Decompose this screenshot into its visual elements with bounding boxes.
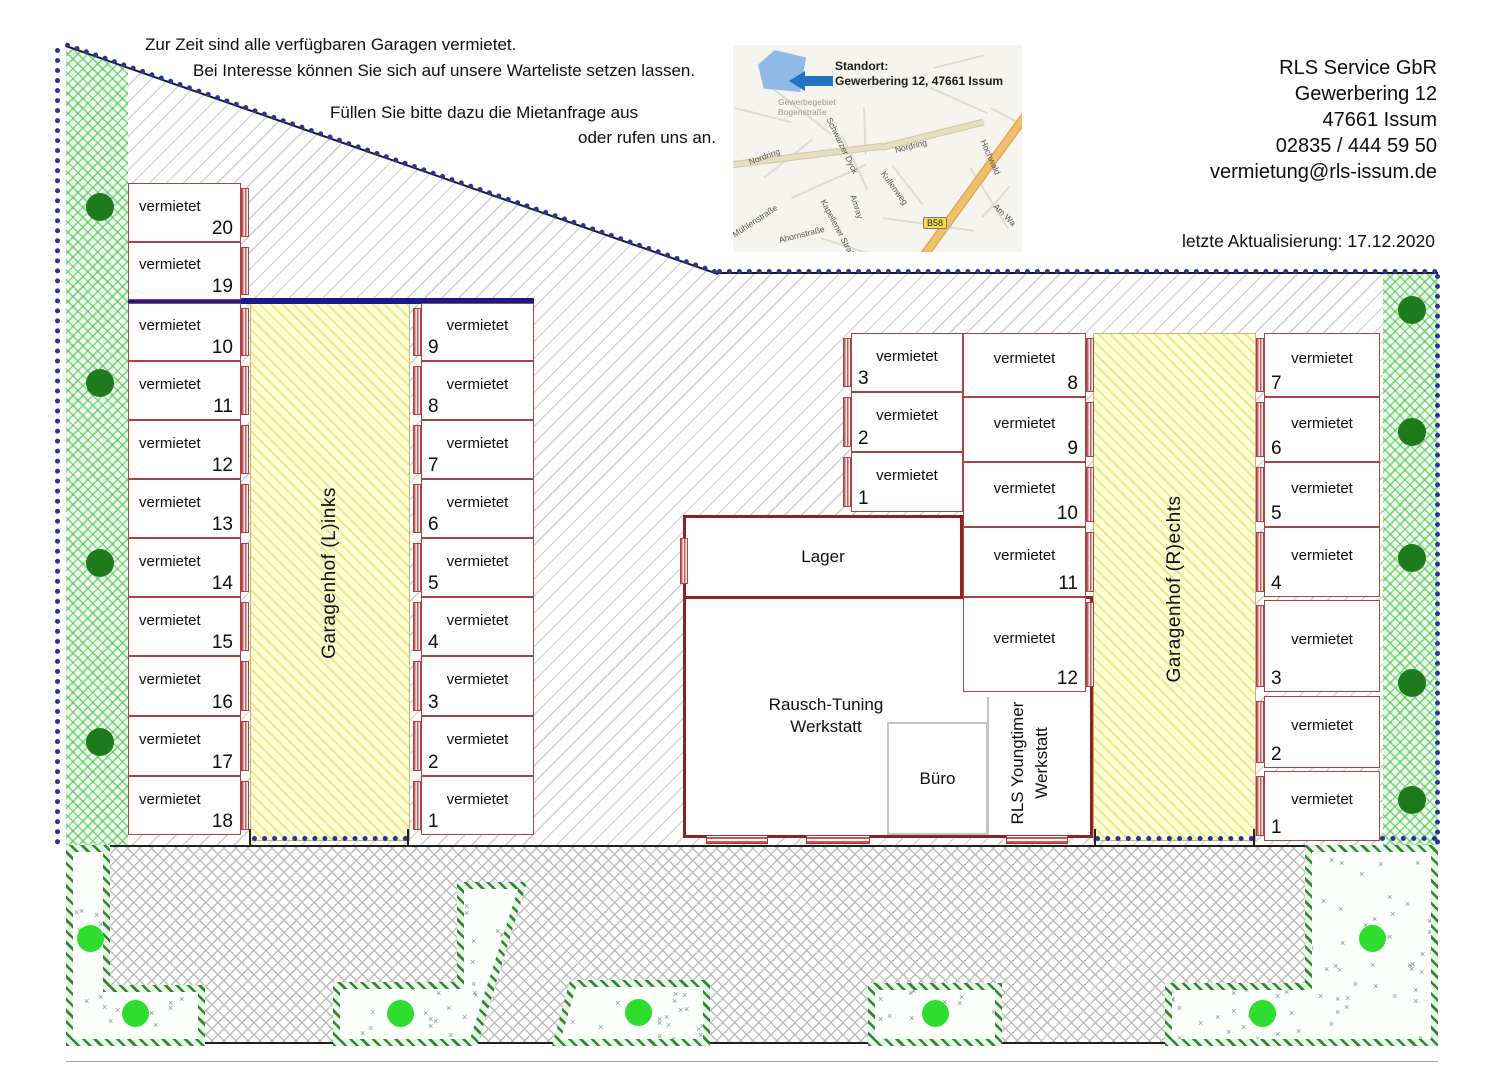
building-door-2 [806, 835, 870, 844]
garage-box-left_inner-5: vermietet5 [421, 538, 534, 597]
garage-number: 5 [428, 573, 439, 595]
garage-number: 20 [212, 218, 233, 240]
street-label: Mühlenstraße [733, 203, 779, 240]
garage-door [843, 397, 851, 447]
garage-door [1256, 532, 1264, 592]
garage-status-label: vermietet [1291, 547, 1353, 564]
garage-status-label: vermietet [139, 198, 201, 215]
garage-number: 18 [212, 811, 233, 833]
garage-box-left_inner-8: vermietet8 [421, 361, 534, 420]
garage-box-left_outer-16: vermietet16 [128, 656, 241, 716]
courtyard-right-label: Garagenhof (R)echts [1164, 455, 1186, 723]
garage-box-left_outer-13: vermietet13 [128, 479, 241, 538]
garage-door [413, 543, 421, 592]
gate-post [1253, 829, 1255, 845]
garage-box-left_outer-11: vermietet11 [128, 361, 241, 420]
garage-status-label: vermietet [139, 256, 201, 273]
garage-number: 1 [428, 811, 439, 833]
partition-line [987, 697, 989, 835]
bush-icon [1359, 925, 1386, 952]
bush-icon [1249, 1000, 1276, 1027]
garage-box-left_inner-6: vermietet6 [421, 479, 534, 538]
garage-door [241, 661, 249, 711]
garage-box-middle_right-11: vermietet11 [963, 527, 1086, 597]
garage-door [241, 781, 249, 830]
garage-door [241, 308, 249, 356]
courtyard-left-label: Garagenhof (L)inks [319, 439, 341, 707]
garage-box-right_inner-5: vermietet5 [1264, 462, 1380, 527]
garage-door [1086, 532, 1094, 592]
garage-door [241, 188, 249, 237]
garage-number: 7 [428, 455, 439, 477]
garage-number: 9 [428, 337, 439, 359]
garage-number: 10 [1057, 503, 1078, 525]
garage-box-left_inner-9: vermietet9 [421, 303, 534, 361]
garage-door [413, 366, 421, 415]
garage-status-label: vermietet [1291, 415, 1353, 432]
garage-number: 13 [212, 514, 233, 536]
garage-box-left_inner-4: vermietet4 [421, 597, 534, 656]
garage-number: 3 [858, 368, 869, 390]
bush-icon [625, 999, 652, 1026]
garage-door [413, 484, 421, 533]
garage-number: 17 [212, 752, 233, 774]
garage-door [1086, 467, 1094, 522]
garage-door [413, 661, 421, 711]
garage-door [241, 247, 249, 295]
bush-icon [922, 1000, 949, 1027]
garage-box-left_outer-15: vermietet15 [128, 597, 241, 656]
garage-door [1086, 338, 1094, 392]
tree-icon [1398, 669, 1426, 697]
tree-icon [1398, 544, 1426, 572]
tree-icon [86, 549, 114, 577]
garage-box-middle_right-8: vermietet8 [963, 333, 1086, 397]
garage-door [1256, 338, 1264, 392]
boundary-right-dots [1435, 274, 1440, 845]
map-road [930, 87, 987, 114]
location-map: Standort: Gewerbering 12, 47661 Issum Ge… [733, 45, 1022, 252]
tree-icon [1398, 786, 1426, 814]
garage-door [1256, 605, 1264, 687]
garage-box-left_outer-17: vermietet17 [128, 716, 241, 776]
company-city: 47661 Issum [1210, 107, 1437, 133]
garage-status-label: vermietet [1291, 717, 1353, 734]
garage-box-right_inner-4: vermietet4 [1264, 527, 1380, 597]
notice-line-4: oder rufen uns an. [578, 128, 716, 148]
garage-box-middle_left-3: vermietet3 [851, 333, 963, 392]
boundary-top-dots [717, 269, 1438, 274]
garage-status-label: vermietet [1291, 350, 1353, 367]
notice-line-3: Füllen Sie bitte dazu die Mietanfrage au… [330, 103, 638, 123]
buero-label: Büro [889, 768, 986, 790]
company-name: RLS Service GbR [1210, 55, 1437, 81]
garage-box-left_outer-20: vermietet20 [128, 183, 241, 242]
garage-door [413, 308, 421, 356]
garage-status-label: vermietet [447, 791, 509, 808]
garage-status-label: vermietet [994, 630, 1056, 647]
garage-number: 2 [858, 428, 869, 450]
garage-number: 2 [428, 752, 439, 774]
gate-right-strip [1380, 836, 1437, 841]
garage-box-middle_left-2: vermietet2 [851, 392, 963, 452]
garage-box-right_inner-7: vermietet7 [1264, 333, 1380, 397]
garage-status-label: vermietet [994, 547, 1056, 564]
garage-box-middle_left-1: vermietet1 [851, 452, 963, 512]
garage-status-label: vermietet [1291, 631, 1353, 648]
garage-box-left_outer-10: vermietet10 [128, 303, 241, 361]
garage-status-label: vermietet [139, 553, 201, 570]
garage-box-middle_right-9: vermietet9 [963, 397, 1086, 462]
garage-status-label: vermietet [139, 494, 201, 511]
garage-status-label: vermietet [994, 480, 1056, 497]
garage-status-label: vermietet [447, 317, 509, 334]
garage-status-label: vermietet [876, 348, 938, 365]
garage-box-left_inner-2: vermietet2 [421, 716, 534, 776]
notice-line-2: Bei Interesse können Sie sich auf unsere… [193, 61, 695, 81]
company-phone: 02835 / 444 59 50 [1210, 133, 1437, 159]
gate-left-courtyard [252, 836, 408, 841]
street-label: Ahornstraße [778, 224, 826, 245]
garage-door [413, 425, 421, 474]
building-door-3 [1006, 835, 1068, 844]
garage-door [241, 484, 249, 533]
street-label: Bogenstraße [778, 107, 827, 117]
tree-icon [1398, 296, 1426, 324]
lager-door [680, 538, 688, 584]
garage-door [413, 721, 421, 771]
garage-status-label: vermietet [139, 376, 201, 393]
garage-number: 10 [212, 337, 233, 359]
garage-box-middle_right-10: vermietet10 [963, 462, 1086, 527]
garage-number: 12 [1057, 668, 1078, 690]
garage-number: 11 [213, 396, 233, 418]
garage-status-label: vermietet [447, 731, 509, 748]
garage-box-right_inner-2: vermietet2 [1264, 696, 1380, 768]
garage-number: 1 [858, 488, 869, 510]
garage-door [843, 457, 851, 507]
tree-icon [86, 728, 114, 756]
garage-box-left_inner-3: vermietet3 [421, 656, 534, 716]
garage-box-right_inner-1: vermietet1 [1264, 771, 1380, 841]
garage-number: 3 [1271, 668, 1282, 690]
lager-building: Lager [683, 515, 963, 599]
garage-number: 15 [212, 632, 233, 654]
garage-box-left_inner-1: vermietet1 [421, 776, 534, 835]
map-road [820, 237, 901, 252]
street-label: Amray [848, 193, 865, 219]
garage-status-label: vermietet [994, 350, 1056, 367]
garage-number: 7 [1271, 373, 1282, 395]
garage-door [241, 425, 249, 474]
garage-box-left_outer-19: vermietet19 [128, 242, 241, 300]
garage-status-label: vermietet [139, 791, 201, 808]
bush-icon [77, 925, 104, 952]
boundary-left-dots [55, 48, 60, 845]
map-b58-badge: B58 [923, 217, 947, 229]
map-standort: Standort: Gewerbering 12, 47661 Issum [835, 59, 1003, 89]
buero-room: Büro [887, 722, 988, 835]
gate-post [1094, 829, 1096, 845]
garage-status-label: vermietet [139, 731, 201, 748]
garage-status-label: vermietet [447, 671, 509, 688]
garage-number: 12 [212, 455, 233, 477]
garage-door [413, 781, 421, 830]
street-label: Kullenweg [879, 169, 910, 207]
garage-status-label: vermietet [139, 612, 201, 629]
green-strip-left [66, 45, 128, 845]
garage-number: 6 [1271, 438, 1282, 460]
notice-line-1: Zur Zeit sind alle verfügbaren Garagen v… [145, 35, 516, 55]
garage-door [241, 366, 249, 415]
garage-number: 1 [1271, 817, 1282, 839]
garage-number: 8 [428, 396, 439, 418]
location-arrow-icon [805, 76, 833, 86]
garage-door [1256, 402, 1264, 457]
garage-status-label: vermietet [447, 553, 509, 570]
garage-number: 11 [1058, 573, 1078, 595]
bush-icon [387, 1000, 414, 1027]
garage-number: 5 [1271, 503, 1282, 525]
garage-status-label: vermietet [139, 317, 201, 334]
garage-door [241, 721, 249, 771]
garage-status-label: vermietet [447, 494, 509, 511]
garage-status-label: vermietet [994, 415, 1056, 432]
garage-number: 3 [428, 692, 439, 714]
garage-status-label: vermietet [139, 671, 201, 688]
garage-number: 9 [1067, 438, 1078, 460]
building-door-1 [706, 835, 768, 844]
street-label: Gewerbegebiet [778, 97, 836, 107]
garage-status-label: vermietet [1291, 480, 1353, 497]
garage-door [1086, 402, 1094, 457]
gate-post [249, 829, 251, 845]
garage-status-label: vermietet [447, 376, 509, 393]
garage-number: 6 [428, 514, 439, 536]
tree-icon [86, 193, 114, 221]
garage-number: 8 [1067, 373, 1078, 395]
bush-icon [122, 1000, 149, 1027]
garage-status-label: vermietet [139, 435, 201, 452]
garage-number: 19 [212, 276, 233, 298]
garage-number: 16 [212, 692, 233, 714]
garage-door [241, 543, 249, 592]
garage-door [1256, 776, 1264, 836]
garage-box-left_outer-12: vermietet12 [128, 420, 241, 479]
garage-number: 4 [1271, 573, 1282, 595]
garage-status-label: vermietet [876, 407, 938, 424]
garage-box-left_outer-14: vermietet14 [128, 538, 241, 597]
garage-box-right_inner-3: vermietet3 [1264, 600, 1380, 692]
company-email: vermietung@rls-issum.de [1210, 159, 1437, 185]
garage-door [1256, 701, 1264, 763]
garage-door [413, 602, 421, 651]
garage-box-left_inner-7: vermietet7 [421, 420, 534, 479]
lager-label: Lager [686, 546, 960, 568]
garage-box-right_inner-6: vermietet6 [1264, 397, 1380, 462]
garage-box-middle_right-12: vermietet12 [963, 597, 1086, 692]
garage-number: 14 [212, 573, 233, 595]
garage-door [1256, 467, 1264, 522]
garage-site-plan: Zur Zeit sind alle verfügbaren Garagen v… [0, 0, 1485, 1086]
garage-box-left_outer-18: vermietet18 [128, 776, 241, 835]
garage-door [843, 338, 851, 387]
gate-right-courtyard [1095, 836, 1254, 841]
location-arrow-icon-tip [789, 71, 805, 91]
garage-status-label: vermietet [447, 612, 509, 629]
company-street: Gewerbering 12 [1210, 81, 1437, 107]
garage-door [1086, 602, 1094, 687]
tree-icon [1398, 418, 1426, 446]
company-address: RLS Service GbR Gewerbering 12 47661 Iss… [1210, 55, 1437, 185]
garage-status-label: vermietet [1291, 791, 1353, 808]
last-updated-text: letzte Aktualisierung: 17.12.2020 [1182, 231, 1435, 252]
garage-status-label: vermietet [447, 435, 509, 452]
garage-number: 2 [1271, 744, 1282, 766]
garage-status-label: vermietet [876, 467, 938, 484]
outer-bottom-line [66, 1061, 1438, 1062]
garage-door [241, 602, 249, 651]
tree-icon [86, 369, 114, 397]
garage-number: 4 [428, 632, 439, 654]
gate-post [407, 829, 409, 845]
